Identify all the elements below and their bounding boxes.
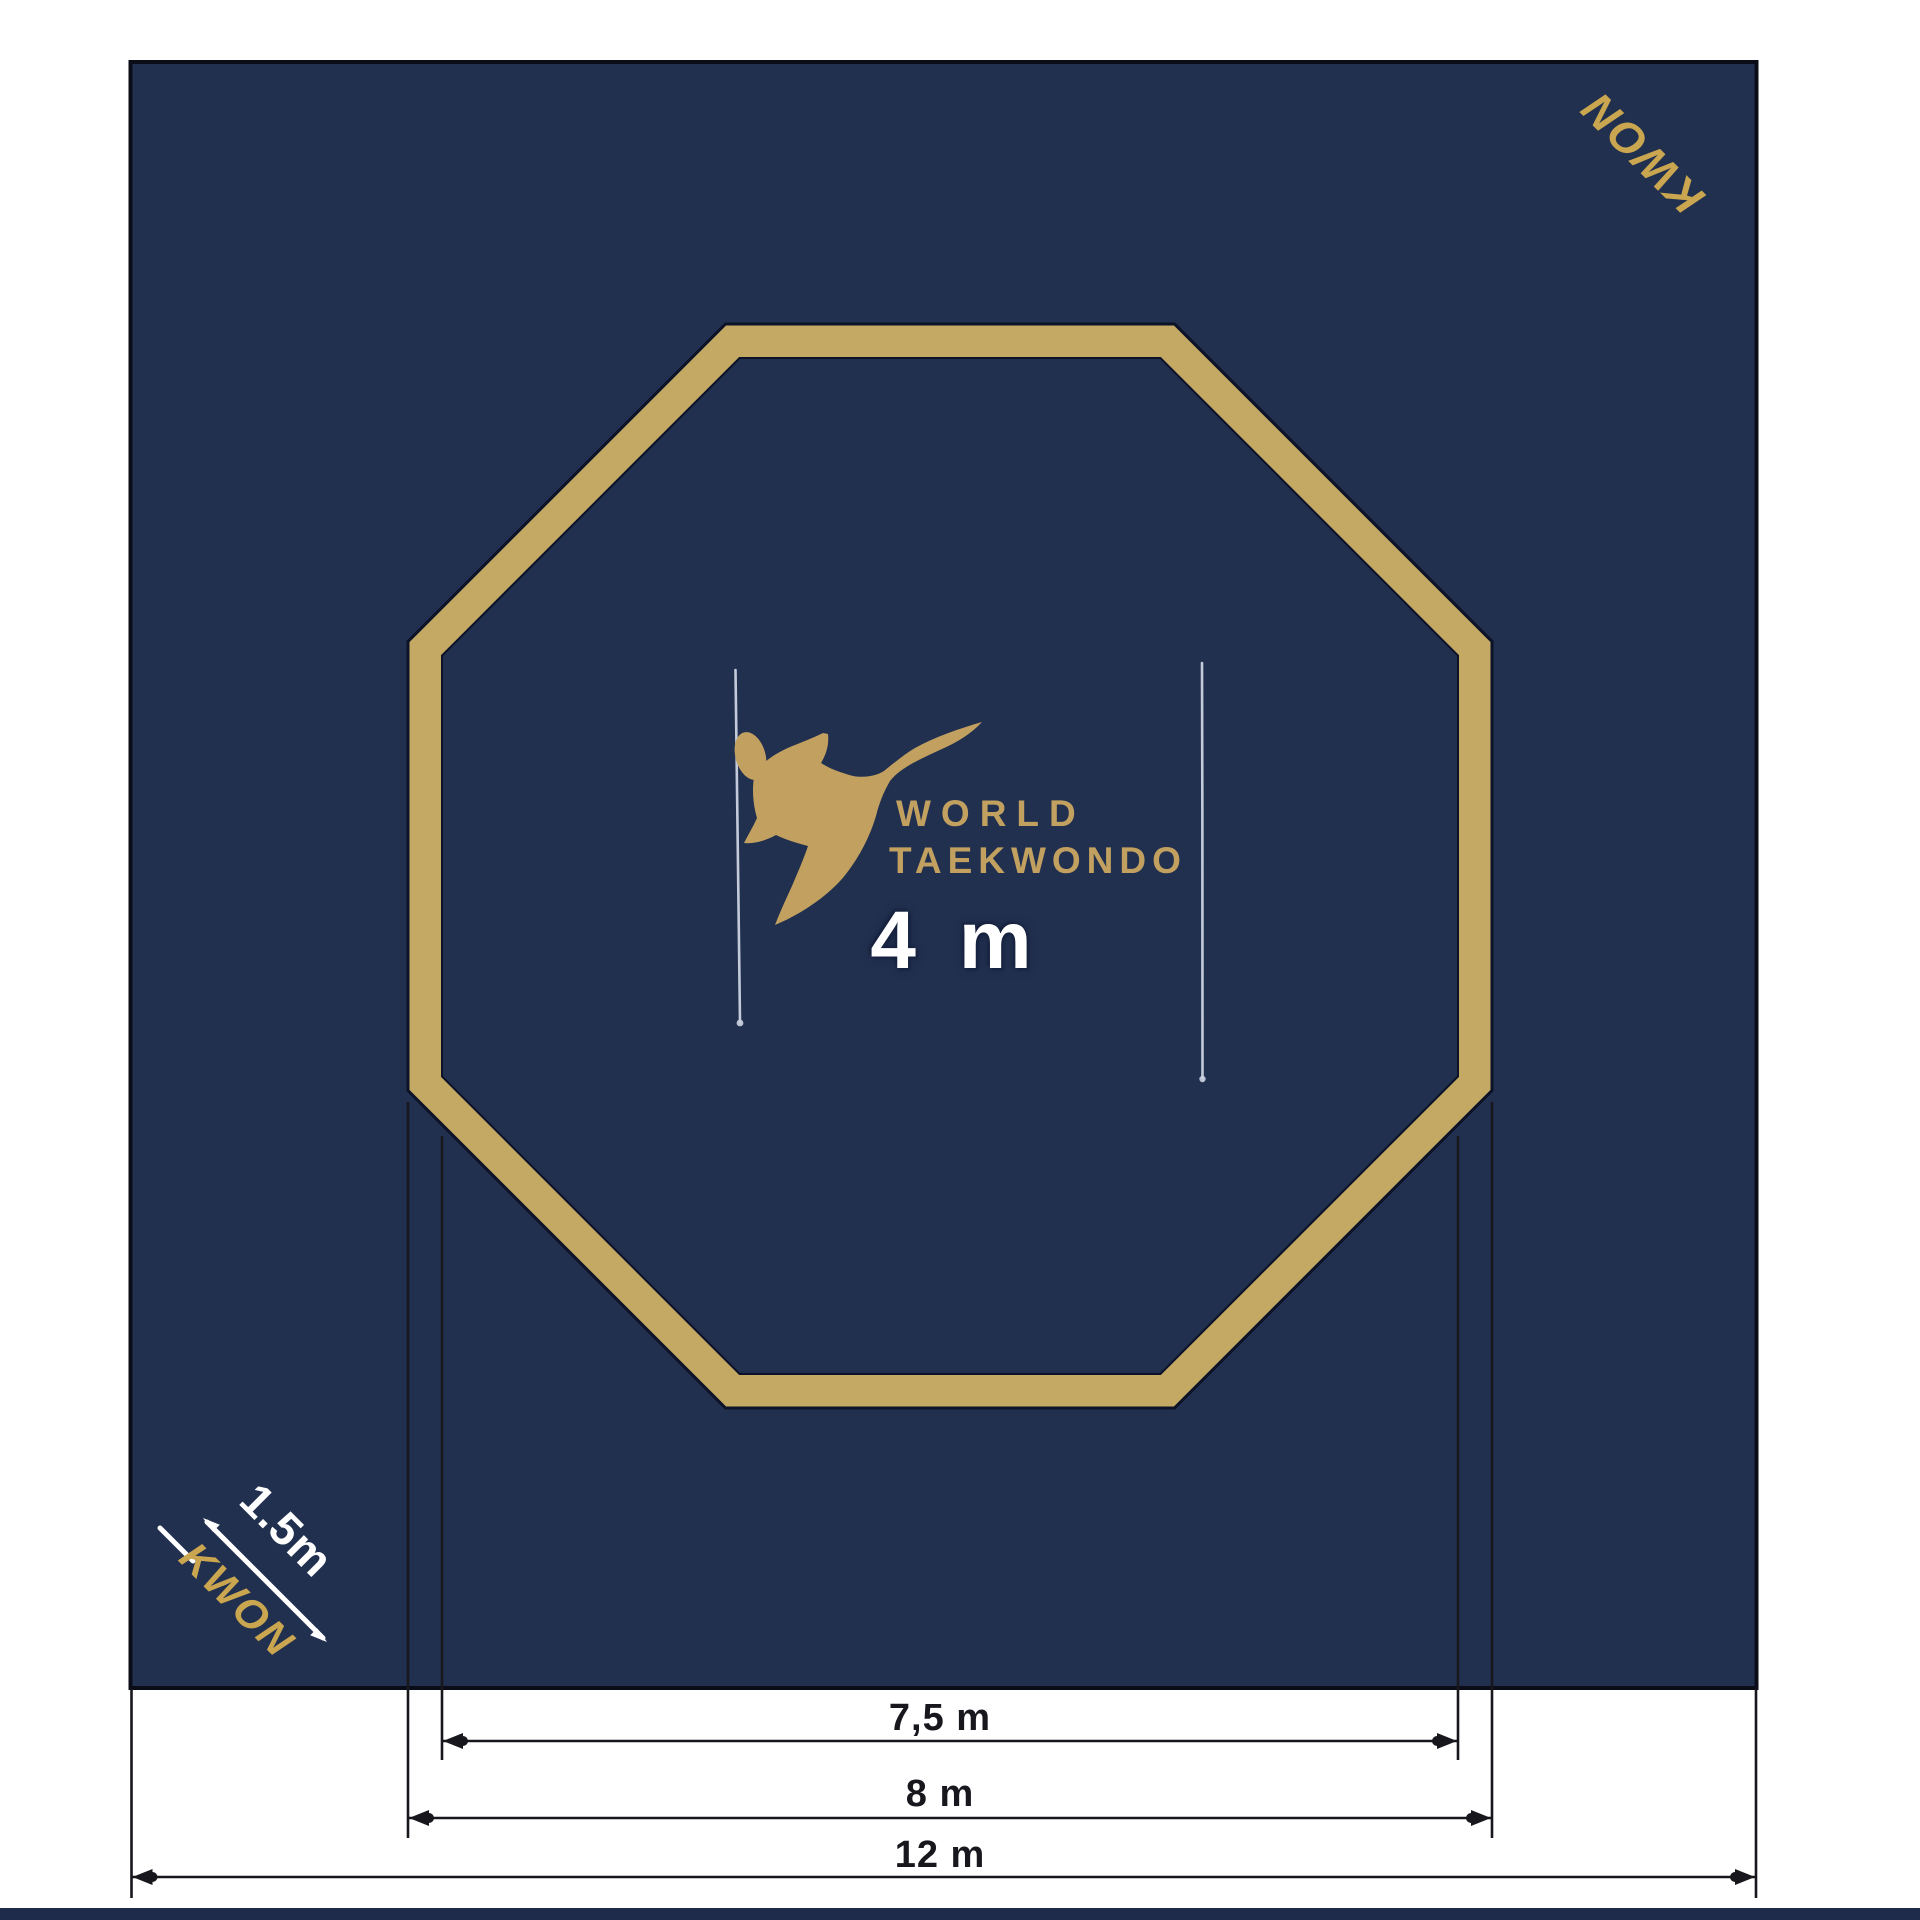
center-measure-line-left-end	[737, 1020, 744, 1027]
court-diagram: KWON WORLD TAEKWONDO 4 m 1.5m KWON 7,5 m…	[0, 0, 1920, 1920]
center-measure-line-right-end	[1199, 1076, 1205, 1082]
center-measure-label: 4 m	[806, 894, 1096, 988]
dim-label-12m: 12 m	[840, 1834, 1040, 1877]
dim-label-7-5m: 7,5 m	[840, 1697, 1040, 1740]
wt-wordmark-line1: WORLD	[896, 793, 1086, 835]
wt-wordmark-line2: TAEKWONDO	[889, 840, 1187, 882]
center-measure-line-right	[1202, 663, 1203, 1078]
dim-label-8m: 8 m	[840, 1773, 1040, 1816]
page-footer-strip	[0, 1908, 1920, 1920]
